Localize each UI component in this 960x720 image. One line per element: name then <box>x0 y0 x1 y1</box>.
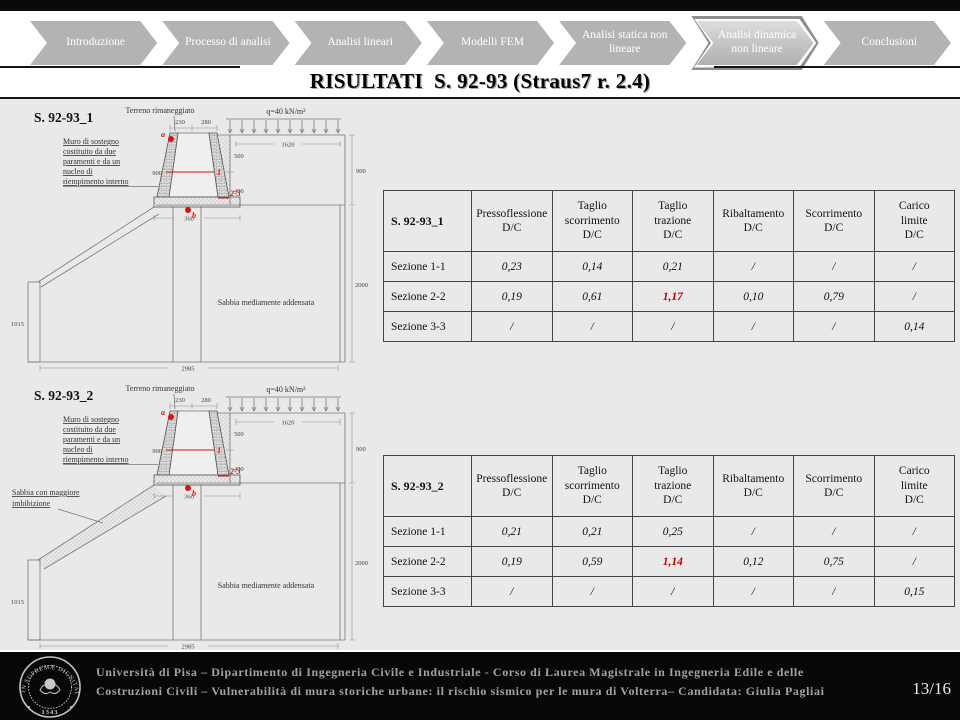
value-cell: 0,21 <box>552 517 633 547</box>
nav-item-modelli-fem[interactable]: Modelli FEM <box>427 21 554 65</box>
table-header-row: S. 92-93_2 Pressoflessione D/C Taglio sc… <box>384 456 955 517</box>
wall-note: Muro di sostegno costituito da due param… <box>63 415 158 465</box>
svg-text:1: 1 <box>217 168 221 177</box>
value-cell: 0,19 <box>472 547 553 577</box>
svg-text:2985: 2985 <box>182 366 195 373</box>
svg-text:2-3: 2-3 <box>229 467 241 476</box>
value-cell: 0,23 <box>472 252 553 282</box>
value-cell: / <box>633 577 714 607</box>
svg-text:b: b <box>192 211 196 220</box>
row-label: Sezione 2-2 <box>384 547 472 577</box>
value-cell: / <box>794 517 875 547</box>
value-cell: / <box>713 517 794 547</box>
header-cell: Taglio trazione D/C <box>633 191 714 252</box>
title-rule-right <box>714 66 960 68</box>
svg-text:900: 900 <box>152 448 162 455</box>
value-cell: 0,25 <box>633 517 714 547</box>
header-cell: Ribaltamento D/C <box>713 456 794 517</box>
nav-item-label: Analisi statica non lineare <box>559 29 686 57</box>
table-row: Sezione 1-1 0,23 0,14 0,21 / / / <box>384 252 955 282</box>
svg-text:Muro di sostegno: Muro di sostegno <box>63 137 119 146</box>
terrain-label: Terreno rimaneggiato <box>126 384 195 393</box>
value-cell: / <box>633 312 714 342</box>
nav-item-conclusioni[interactable]: Conclusioni <box>824 21 951 65</box>
svg-text:costituito da due: costituito da due <box>63 147 116 156</box>
figure-title: S. 92-93_1 <box>34 110 94 125</box>
svg-text:a: a <box>161 408 165 417</box>
value-cell: 1,17 <box>633 282 714 312</box>
value-cell: / <box>794 312 875 342</box>
nav-item-label: Modelli FEM <box>442 36 539 50</box>
table-row: Sezione 2-2 0,19 0,61 1,17 0,10 0,79 / <box>384 282 955 312</box>
value-cell: 0,14 <box>552 252 633 282</box>
svg-text:2000: 2000 <box>355 560 368 567</box>
value-cell: 0,21 <box>633 252 714 282</box>
value-cell: 1,14 <box>633 547 714 577</box>
nav-item-processo-di-analisi[interactable]: Processo di analisi <box>162 21 289 65</box>
value-cell: / <box>472 577 553 607</box>
value-cell: / <box>874 517 955 547</box>
header-cell: Carico limite D/C <box>874 456 955 517</box>
imbibed-layer-hatch <box>38 485 166 569</box>
svg-text:280: 280 <box>201 119 211 126</box>
table-row: Sezione 3-3 / / / / / 0,15 <box>384 577 955 607</box>
distributed-load-arrows <box>226 397 341 411</box>
value-cell: / <box>794 252 875 282</box>
row-label: Sezione 2-2 <box>384 282 472 312</box>
distributed-load-arrows <box>226 119 341 133</box>
svg-text:900: 900 <box>356 446 366 453</box>
row-label: Sezione 3-3 <box>384 577 472 607</box>
svg-text:nucleo di: nucleo di <box>63 167 93 176</box>
svg-text:280: 280 <box>201 397 211 404</box>
value-cell: / <box>874 282 955 312</box>
figure-section-92-93-1: S. 92-93_1 Terreno rimaneggiato q=40 kN/… <box>8 100 380 372</box>
table-row: Sezione 2-2 0,19 0,59 1,14 0,12 0,75 / <box>384 547 955 577</box>
nav-item-label: Processo di analisi <box>166 36 286 50</box>
value-cell: 0,19 <box>472 282 553 312</box>
value-cell: 0,14 <box>874 312 955 342</box>
page-title: RISULTATI S. 92-93 (Straus7 r. 2.4) <box>0 69 960 94</box>
svg-text:500: 500 <box>234 153 244 160</box>
svg-text:500: 500 <box>234 431 244 438</box>
value-cell: / <box>472 312 553 342</box>
value-cell: 0,10 <box>713 282 794 312</box>
svg-text:1015: 1015 <box>11 321 24 328</box>
value-cell: / <box>552 312 633 342</box>
table-title-cell: S. 92-93_1 <box>384 191 472 252</box>
header-cell: Pressoflessione D/C <box>472 191 553 252</box>
svg-text:900: 900 <box>356 168 366 175</box>
svg-text:230: 230 <box>175 119 185 126</box>
header-cell: Taglio scorrimento D/C <box>552 456 633 517</box>
header-cell: Pressoflessione D/C <box>472 456 553 517</box>
svg-text:1620: 1620 <box>282 420 295 427</box>
soil-label: Sabbia mediamente addensata <box>218 581 315 590</box>
value-cell: 0,75 <box>794 547 875 577</box>
footer-text: Università di Pisa – Dipartimento di Ing… <box>96 663 896 701</box>
value-cell: 0,12 <box>713 547 794 577</box>
load-label: q=40 kN/m² <box>266 385 306 394</box>
nav-item-analisi-lineari[interactable]: Analisi lineari <box>295 21 422 65</box>
university-seal-logo: IN SUPREMÆ DIGNITATIS 1343 <box>14 654 86 720</box>
breadcrumb-nav: Introduzione Processo di analisi Analisi… <box>30 15 956 71</box>
table-header-row: S. 92-93_1 Pressoflessione D/C Taglio sc… <box>384 191 955 252</box>
terrain-label: Terreno rimaneggiato <box>126 106 195 115</box>
svg-text:230: 230 <box>175 397 185 404</box>
svg-text:2000: 2000 <box>355 282 368 289</box>
value-cell: 0,59 <box>552 547 633 577</box>
svg-text:b: b <box>192 489 196 498</box>
svg-text:2985: 2985 <box>182 644 195 651</box>
svg-text:900: 900 <box>152 170 162 177</box>
value-cell: / <box>794 577 875 607</box>
results-table-1: S. 92-93_1 Pressoflessione D/C Taglio sc… <box>383 190 955 342</box>
extra-soil-note: Sabbia con maggiore imbibizione <box>12 488 103 523</box>
seal-year: 1343 <box>42 709 59 716</box>
value-cell: / <box>713 252 794 282</box>
svg-text:riempimento interno: riempimento interno <box>63 177 129 186</box>
svg-text:imbibizione: imbibizione <box>12 499 51 508</box>
title-rule-left <box>0 66 240 68</box>
svg-text:a: a <box>161 130 165 139</box>
value-cell: 0,79 <box>794 282 875 312</box>
value-cell: 0,61 <box>552 282 633 312</box>
svg-text:Muro di sostegno: Muro di sostegno <box>63 415 119 424</box>
svg-text:1015: 1015 <box>11 599 24 606</box>
nav-item-label: Analisi dinamica non lineare <box>691 29 818 57</box>
nav-item-introduzione[interactable]: Introduzione <box>30 21 157 65</box>
load-label: q=40 kN/m² <box>266 107 306 116</box>
seal-motto: IN SUPREMÆ DIGNITATIS <box>14 654 79 695</box>
row-label: Sezione 1-1 <box>384 252 472 282</box>
page-number: 13/16 <box>912 679 951 699</box>
nav-item-label: Introduzione <box>47 36 140 50</box>
svg-text:IN SUPREMÆ DIGNITATIS: IN SUPREMÆ DIGNITATIS <box>14 654 79 695</box>
svg-text:2-3: 2-3 <box>229 189 241 198</box>
value-cell: / <box>874 252 955 282</box>
value-cell: / <box>874 547 955 577</box>
wall-note: Muro di sostegno costituito da due param… <box>63 137 158 187</box>
nav-item-label: Analisi lineari <box>308 36 407 50</box>
top-black-strip <box>0 0 960 11</box>
svg-text:paramenti e da un: paramenti e da un <box>63 435 120 444</box>
figure-title: S. 92-93_2 <box>34 388 94 403</box>
svg-text:costituito da due: costituito da due <box>63 425 116 434</box>
header-cell: Scorrimento D/C <box>794 191 875 252</box>
nav-item-analisi-statica-non-lineare[interactable]: Analisi statica non lineare <box>559 21 686 65</box>
header-cell: Ribaltamento D/C <box>713 191 794 252</box>
footer-line-1: Università di Pisa – Dipartimento di Ing… <box>96 663 896 682</box>
header-cell: Taglio trazione D/C <box>633 456 714 517</box>
soil-label: Sabbia mediamente addensata <box>218 298 315 307</box>
table-title-cell: S. 92-93_2 <box>384 456 472 517</box>
value-cell: 0,21 <box>472 517 553 547</box>
value-cell: / <box>552 577 633 607</box>
table-row: Sezione 1-1 0,21 0,21 0,25 / / / <box>384 517 955 547</box>
svg-text:nucleo di: nucleo di <box>63 445 93 454</box>
footer-line-2: Costruzioni Civili – Vulnerabilità di mu… <box>96 682 896 701</box>
figure-section-92-93-2: S. 92-93_2 Terreno rimaneggiato q=40 kN/… <box>8 378 380 650</box>
value-cell: / <box>713 577 794 607</box>
svg-text:riempimento interno: riempimento interno <box>63 455 129 464</box>
svg-text:paramenti e da un: paramenti e da un <box>63 157 120 166</box>
footer-bar: IN SUPREMÆ DIGNITATIS 1343 Università di… <box>0 652 960 720</box>
value-cell: / <box>713 312 794 342</box>
header-cell: Scorrimento D/C <box>794 456 875 517</box>
nav-item-analisi-dinamica-non-lineare[interactable]: Analisi dinamica non lineare <box>691 16 818 70</box>
svg-text:Sabbia con maggiore: Sabbia con maggiore <box>12 488 80 497</box>
svg-text:1620: 1620 <box>282 142 295 149</box>
results-table-2: S. 92-93_2 Pressoflessione D/C Taglio sc… <box>383 455 955 607</box>
svg-text:1: 1 <box>217 446 221 455</box>
header-cell: Taglio scorrimento D/C <box>552 191 633 252</box>
row-label: Sezione 1-1 <box>384 517 472 547</box>
nav-item-label: Conclusioni <box>843 36 933 50</box>
row-label: Sezione 3-3 <box>384 312 472 342</box>
value-cell: 0,15 <box>874 577 955 607</box>
table-row: Sezione 3-3 / / / / / 0,14 <box>384 312 955 342</box>
header-cell: Carico limite D/C <box>874 191 955 252</box>
